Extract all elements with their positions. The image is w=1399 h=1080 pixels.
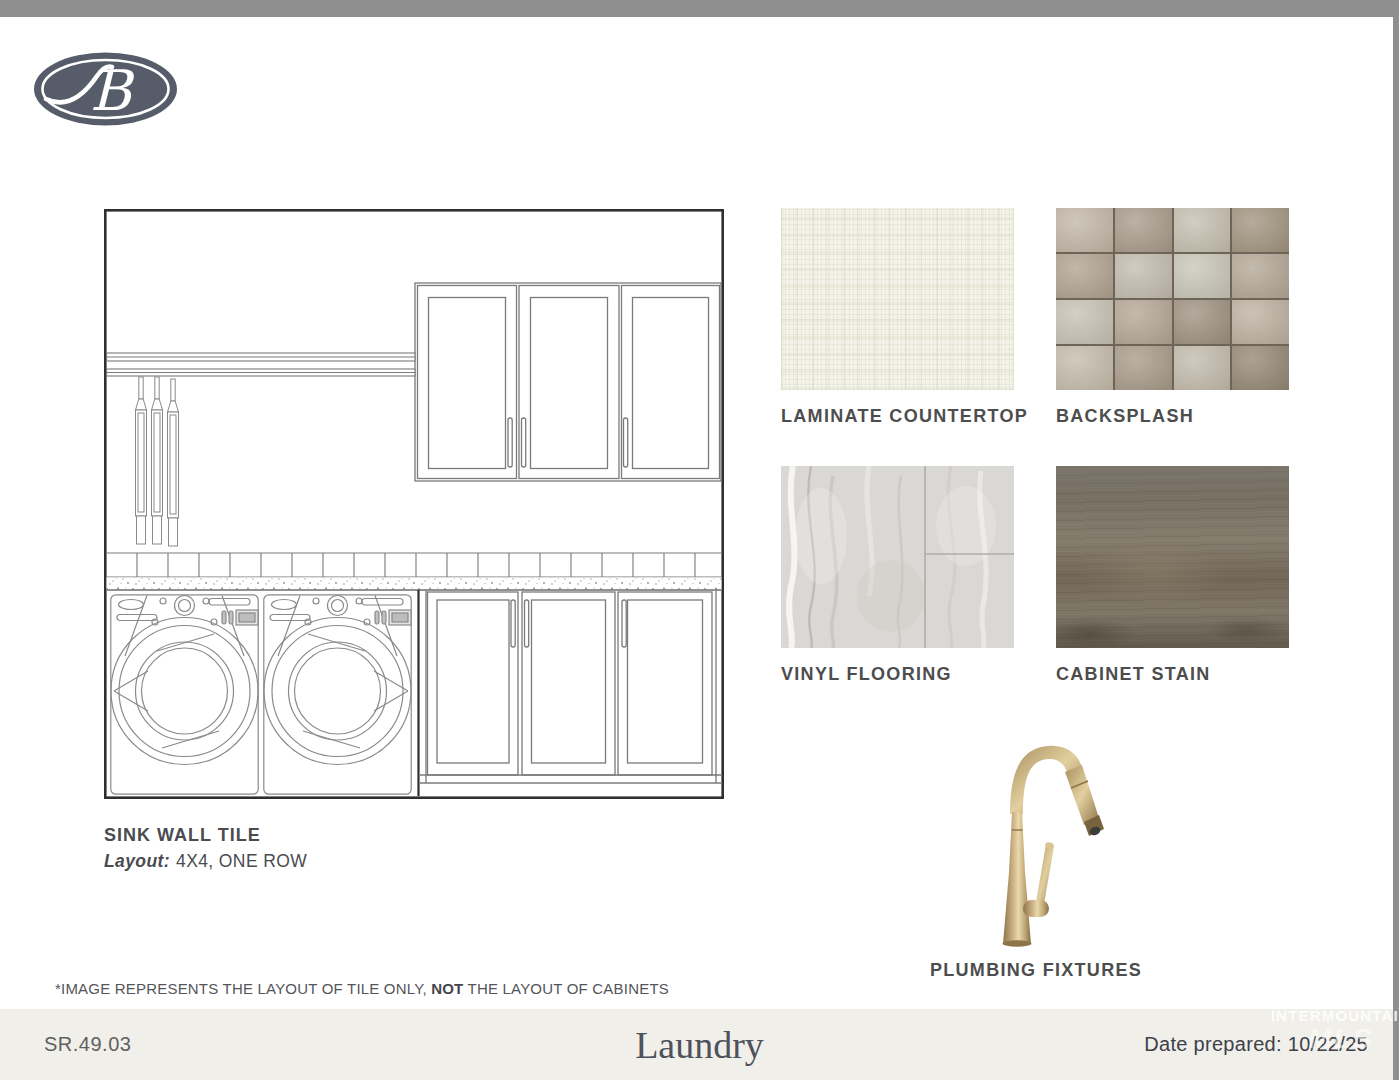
backsplash-tile — [1056, 346, 1113, 390]
backsplash-tile — [1232, 208, 1289, 252]
date-prepared: Date prepared: 10/22/25 — [1144, 1009, 1368, 1080]
tile-disclaimer: *IMAGE REPRESENTS THE LAYOUT OF TILE ONL… — [55, 980, 669, 997]
backsplash-tile — [1056, 300, 1113, 344]
backsplash-tile — [1115, 254, 1172, 298]
backsplash-tile — [1174, 254, 1231, 298]
laundry-elevation-drawing — [104, 209, 724, 799]
disclaimer-part2: THE LAYOUT OF CABINETS — [463, 980, 668, 997]
backsplash-tile — [1174, 300, 1231, 344]
cabinet-stain-label: CABINET STAIN — [1056, 664, 1211, 685]
backsplash-tile — [1056, 208, 1113, 252]
backsplash-label: BACKSPLASH — [1056, 406, 1194, 427]
logo-letter: B — [90, 58, 135, 123]
drawing-caption: SINK WALL TILE Layout:4X4, ONE ROW — [104, 825, 307, 872]
window-chrome-top-bar — [0, 0, 1399, 17]
window-chrome-right-bar — [1393, 0, 1399, 1080]
laminate-countertop-label: LAMINATE COUNTERTOP — [781, 406, 1028, 427]
backsplash-tile — [1115, 208, 1172, 252]
disclaimer-emphasis: NOT — [431, 980, 463, 997]
backsplash-tile — [1232, 254, 1289, 298]
backsplash-tile — [1115, 346, 1172, 390]
spec-sheet-page: B — [0, 0, 1399, 1080]
backsplash-swatch — [1056, 208, 1289, 390]
backsplash-tile — [1115, 300, 1172, 344]
washer-dryer — [111, 590, 419, 796]
layout-label: Layout: — [104, 851, 170, 871]
backsplash-tile — [1174, 346, 1231, 390]
backsplash-tile — [1232, 346, 1289, 390]
laminate-countertop-swatch — [781, 208, 1014, 390]
layout-value: 4X4, ONE ROW — [176, 851, 307, 871]
cabinet-stain-swatch — [1056, 466, 1289, 648]
faucet-image — [985, 712, 1120, 947]
hanging-rods — [136, 377, 179, 546]
backsplash-tile — [1174, 208, 1231, 252]
backsplash-tile — [1232, 300, 1289, 344]
vinyl-flooring-label: VINYL FLOORING — [781, 664, 952, 685]
sheet-footer: SR.49.03 Laundry Date prepared: 10/22/25 — [0, 1009, 1399, 1080]
backsplash-tile — [1056, 254, 1113, 298]
tile-title: SINK WALL TILE — [104, 825, 307, 846]
plumbing-fixtures-label: PLUMBING FIXTURES — [929, 960, 1143, 981]
countertop-strip — [107, 578, 722, 591]
vinyl-flooring-swatch — [781, 466, 1014, 648]
disclaimer-part1: *IMAGE REPRESENTS THE LAYOUT OF TILE ONL… — [55, 980, 431, 997]
tile-layout-line: Layout:4X4, ONE ROW — [104, 851, 307, 872]
builder-logo: B — [33, 52, 178, 126]
